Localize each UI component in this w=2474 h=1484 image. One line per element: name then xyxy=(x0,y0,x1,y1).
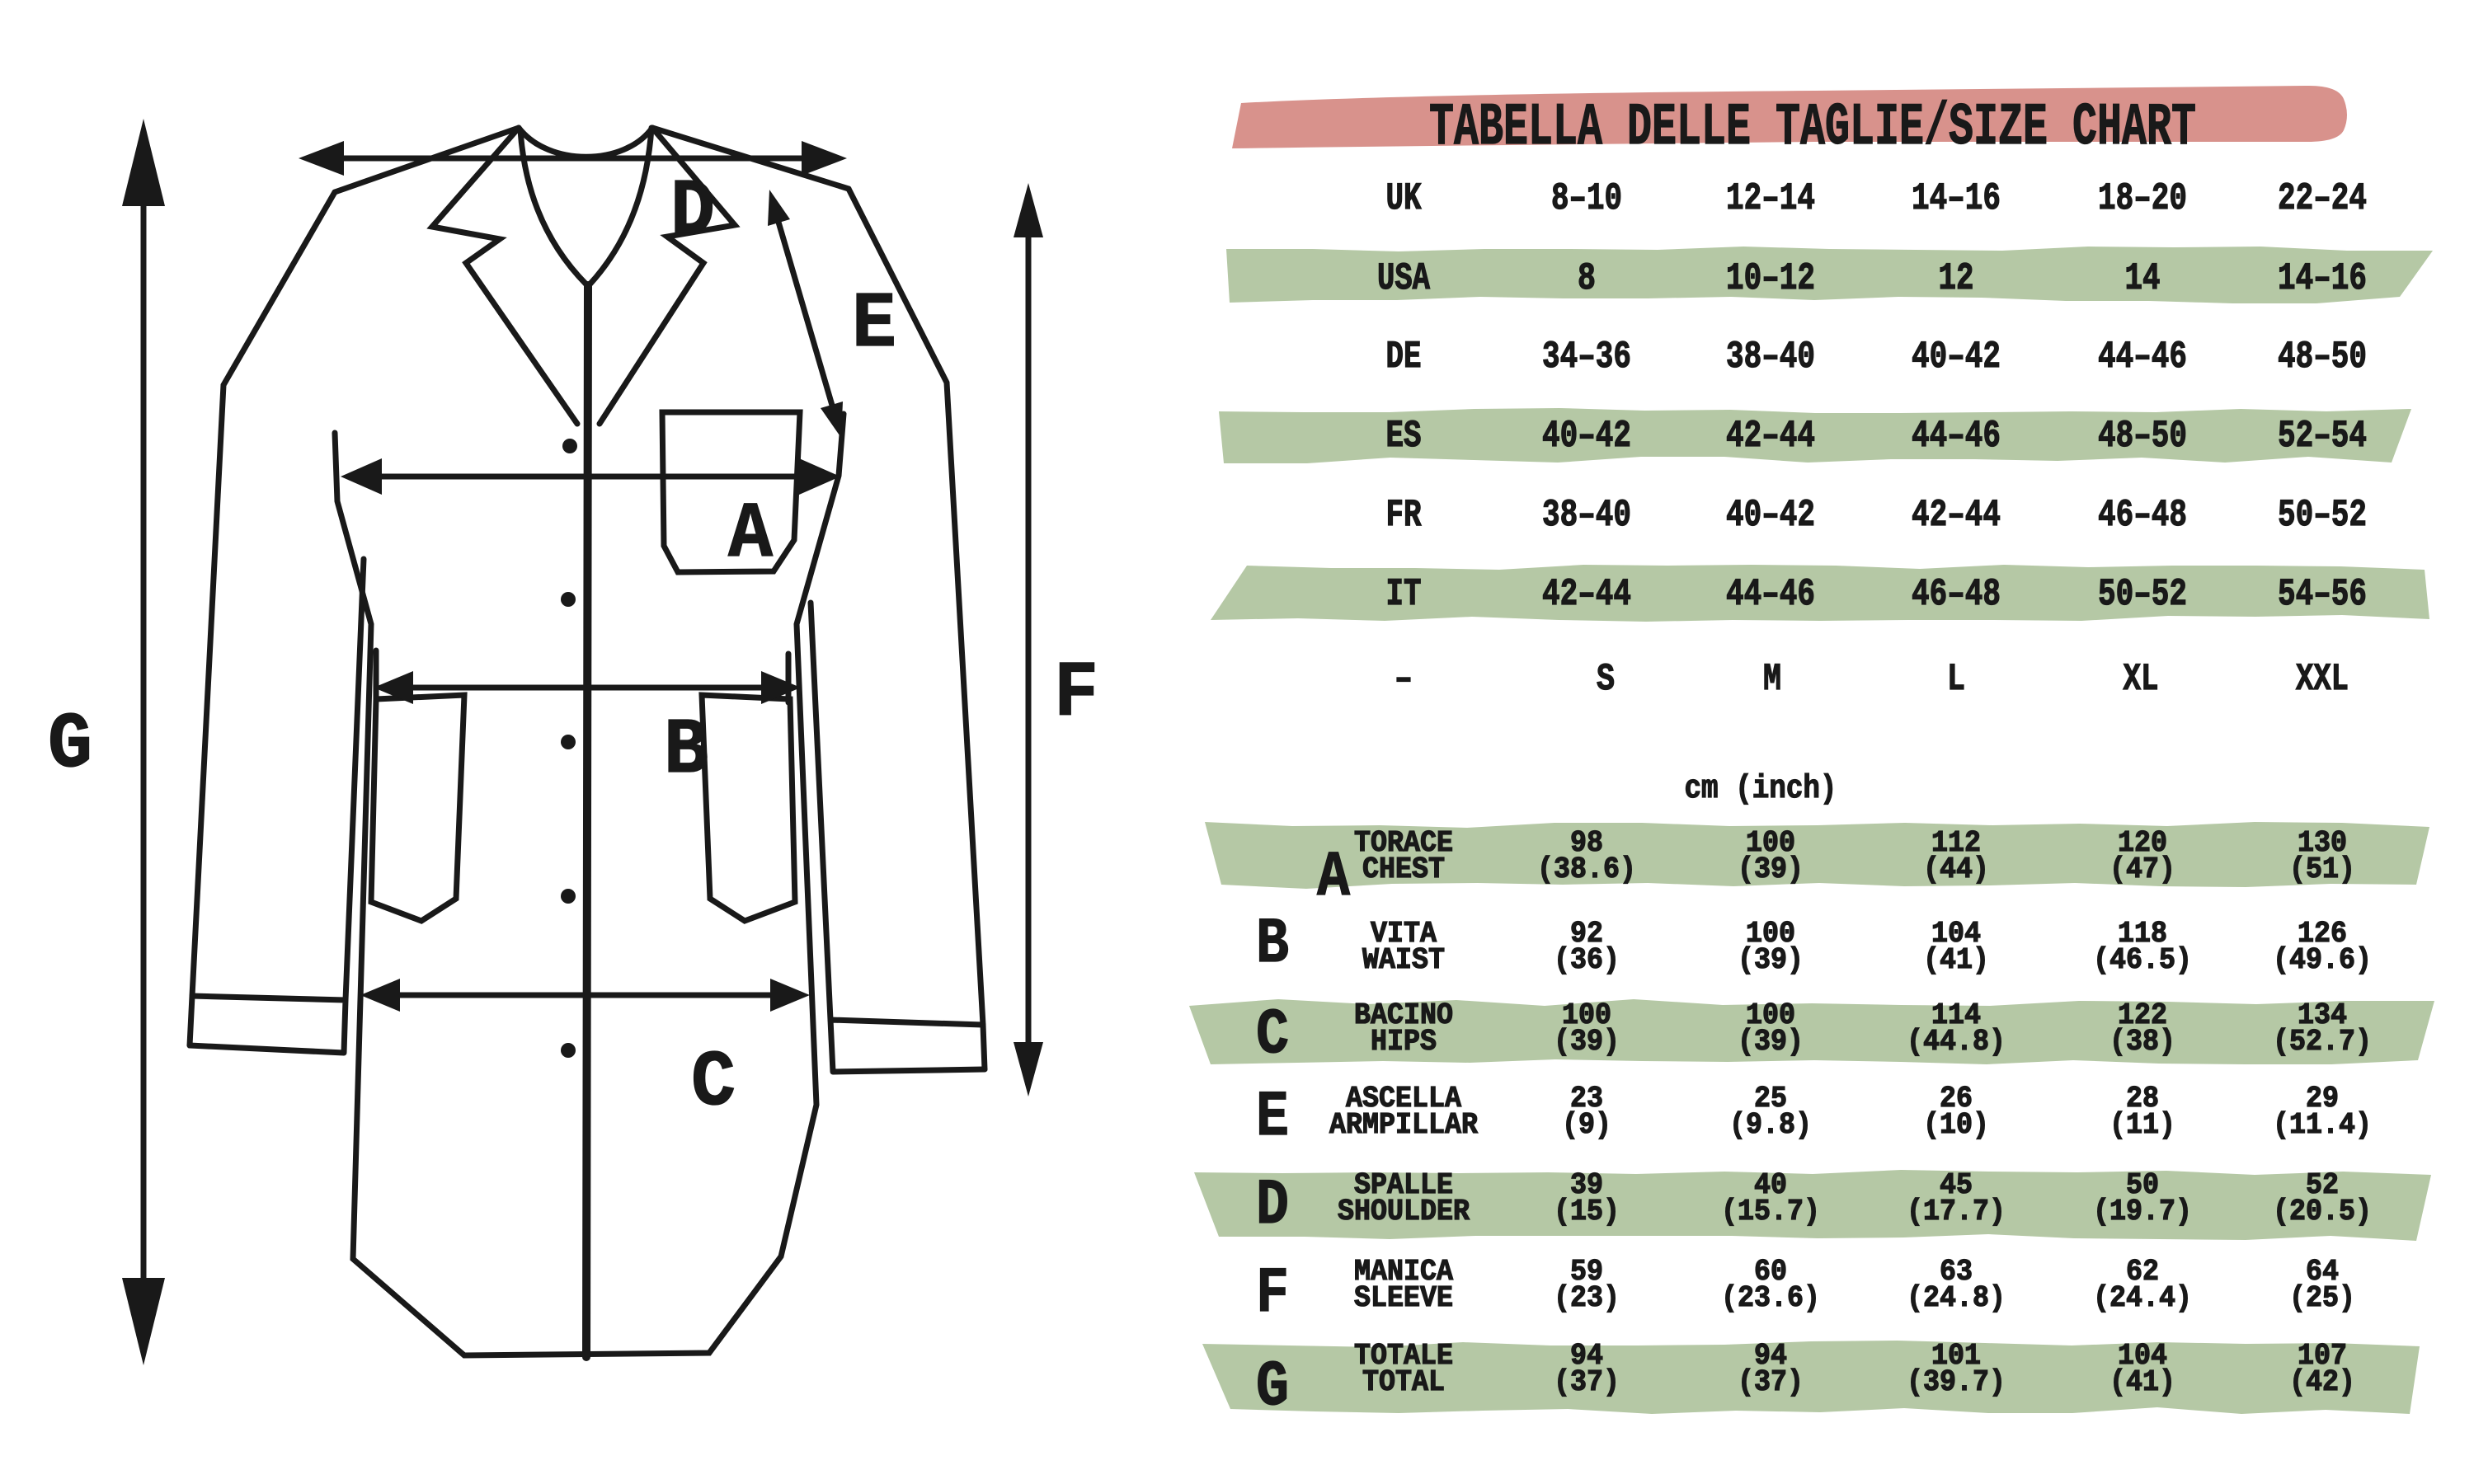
svg-text:A: A xyxy=(1317,842,1350,914)
svg-text:(25): (25) xyxy=(2289,1281,2355,1315)
svg-text:38–40: 38–40 xyxy=(1542,494,1631,537)
svg-text:(20.5): (20.5) xyxy=(2273,1195,2372,1228)
svg-text:WAIST: WAIST xyxy=(1362,943,1445,977)
svg-text:(38): (38) xyxy=(2109,1025,2175,1059)
svg-text:(44.8): (44.8) xyxy=(1907,1025,2006,1059)
svg-text:38–40: 38–40 xyxy=(1726,336,1815,378)
svg-text:ES: ES xyxy=(1386,415,1422,458)
svg-text:XL: XL xyxy=(2124,658,2159,701)
svg-text:42–44: 42–44 xyxy=(1912,494,2001,537)
svg-text:G: G xyxy=(1256,1351,1289,1424)
svg-text:52–54: 52–54 xyxy=(2278,415,2367,458)
svg-text:(9): (9) xyxy=(1562,1108,1611,1142)
svg-text:(19.7): (19.7) xyxy=(2093,1195,2192,1228)
svg-text:C: C xyxy=(1256,999,1289,1072)
svg-text:42–44: 42–44 xyxy=(1542,573,1631,616)
svg-text:E: E xyxy=(1256,1082,1289,1154)
svg-text:–: – xyxy=(1395,658,1413,701)
svg-text:HIPS: HIPS xyxy=(1371,1025,1437,1059)
svg-text:TABELLA DELLE TAGLIE/SIZE CHAR: TABELLA DELLE TAGLIE/SIZE CHART xyxy=(1429,94,2196,162)
svg-text:(24.4): (24.4) xyxy=(2093,1281,2192,1315)
svg-text:D: D xyxy=(670,167,715,256)
svg-text:G: G xyxy=(48,700,92,790)
svg-text:(37): (37) xyxy=(1738,1365,1804,1399)
svg-text:E: E xyxy=(852,279,896,369)
svg-text:(52.7): (52.7) xyxy=(2273,1025,2372,1059)
svg-text:12: 12 xyxy=(1939,257,1974,300)
svg-text:(39): (39) xyxy=(1738,943,1804,977)
svg-text:22–24: 22–24 xyxy=(2278,177,2367,220)
svg-text:46–48: 46–48 xyxy=(2098,494,2187,537)
svg-text:48–50: 48–50 xyxy=(2278,336,2367,378)
svg-text:(49.6): (49.6) xyxy=(2273,943,2372,977)
svg-text:(9.8): (9.8) xyxy=(1729,1108,1812,1142)
svg-text:CHEST: CHEST xyxy=(1362,852,1445,886)
svg-text:(39): (39) xyxy=(1554,1025,1620,1059)
svg-text:(17.7): (17.7) xyxy=(1907,1195,2006,1228)
svg-text:34–36: 34–36 xyxy=(1542,336,1631,378)
svg-text:54–56: 54–56 xyxy=(2278,573,2367,616)
svg-text:(15): (15) xyxy=(1554,1195,1620,1228)
svg-text:12–14: 12–14 xyxy=(1726,177,1815,220)
svg-text:(42): (42) xyxy=(2289,1365,2355,1399)
svg-text:SLEEVE: SLEEVE xyxy=(1354,1281,1453,1315)
svg-text:40–42: 40–42 xyxy=(1542,415,1631,458)
svg-text:L: L xyxy=(1947,658,1965,701)
svg-text:XXL: XXL xyxy=(2296,658,2349,701)
svg-text:8: 8 xyxy=(1578,257,1596,300)
svg-text:(39): (39) xyxy=(1738,852,1804,886)
svg-text:C: C xyxy=(691,1038,736,1128)
svg-text:B: B xyxy=(664,706,708,796)
svg-text:44–46: 44–46 xyxy=(1726,573,1815,616)
svg-text:(36): (36) xyxy=(1554,943,1620,977)
svg-text:IT: IT xyxy=(1386,573,1422,616)
svg-text:14–16: 14–16 xyxy=(1912,177,2001,220)
svg-text:(23.6): (23.6) xyxy=(1721,1281,1820,1315)
svg-text:(10): (10) xyxy=(1923,1108,1989,1142)
svg-text:SHOULDER: SHOULDER xyxy=(1338,1195,1470,1228)
svg-text:(38.6): (38.6) xyxy=(1537,852,1636,886)
svg-text:USA: USA xyxy=(1377,257,1430,300)
svg-text:14: 14 xyxy=(2125,257,2161,300)
svg-text:(41): (41) xyxy=(1923,943,1989,977)
svg-text:46–48: 46–48 xyxy=(1912,573,2001,616)
svg-text:ARMPILLAR: ARMPILLAR xyxy=(1329,1108,1478,1142)
svg-text:DE: DE xyxy=(1386,336,1422,378)
svg-text:14–16: 14–16 xyxy=(2278,257,2367,300)
svg-text:(39.7): (39.7) xyxy=(1907,1365,2006,1399)
svg-text:(41): (41) xyxy=(2109,1365,2175,1399)
svg-text:(23): (23) xyxy=(1554,1281,1620,1315)
svg-text:18–20: 18–20 xyxy=(2098,177,2187,220)
svg-text:50–52: 50–52 xyxy=(2278,494,2367,537)
svg-text:M: M xyxy=(1763,658,1781,701)
svg-text:B: B xyxy=(1256,909,1289,981)
svg-text:cm (inch): cm (inch) xyxy=(1685,771,1837,808)
svg-text:44–46: 44–46 xyxy=(2098,336,2187,378)
svg-text:48–50: 48–50 xyxy=(2098,415,2187,458)
svg-text:(44): (44) xyxy=(1923,852,1989,886)
svg-text:TOTAL: TOTAL xyxy=(1362,1365,1445,1399)
svg-text:S: S xyxy=(1597,658,1615,701)
svg-text:(47): (47) xyxy=(2109,852,2175,886)
svg-text:(51): (51) xyxy=(2289,852,2355,886)
svg-text:A: A xyxy=(728,490,773,580)
svg-text:(37): (37) xyxy=(1554,1365,1620,1399)
svg-text:(24.8): (24.8) xyxy=(1907,1281,2006,1315)
svg-text:(11): (11) xyxy=(2109,1108,2175,1142)
svg-text:10–12: 10–12 xyxy=(1726,257,1815,300)
svg-text:(39): (39) xyxy=(1738,1025,1804,1059)
svg-text:50–52: 50–52 xyxy=(2098,573,2187,616)
svg-text:(46.5): (46.5) xyxy=(2093,943,2192,977)
svg-text:42–44: 42–44 xyxy=(1726,415,1815,458)
svg-text:(15.7): (15.7) xyxy=(1721,1195,1820,1228)
svg-text:44–46: 44–46 xyxy=(1912,415,2001,458)
svg-text:40–42: 40–42 xyxy=(1726,494,1815,537)
svg-text:40–42: 40–42 xyxy=(1912,336,2001,378)
svg-text:F: F xyxy=(1256,1258,1289,1331)
svg-text:UK: UK xyxy=(1386,177,1422,220)
svg-text:F: F xyxy=(1054,649,1098,739)
svg-text:FR: FR xyxy=(1386,494,1422,537)
svg-text:D: D xyxy=(1256,1170,1289,1242)
svg-text:(11.4): (11.4) xyxy=(2273,1108,2372,1142)
svg-text:8–10: 8–10 xyxy=(1551,177,1622,220)
